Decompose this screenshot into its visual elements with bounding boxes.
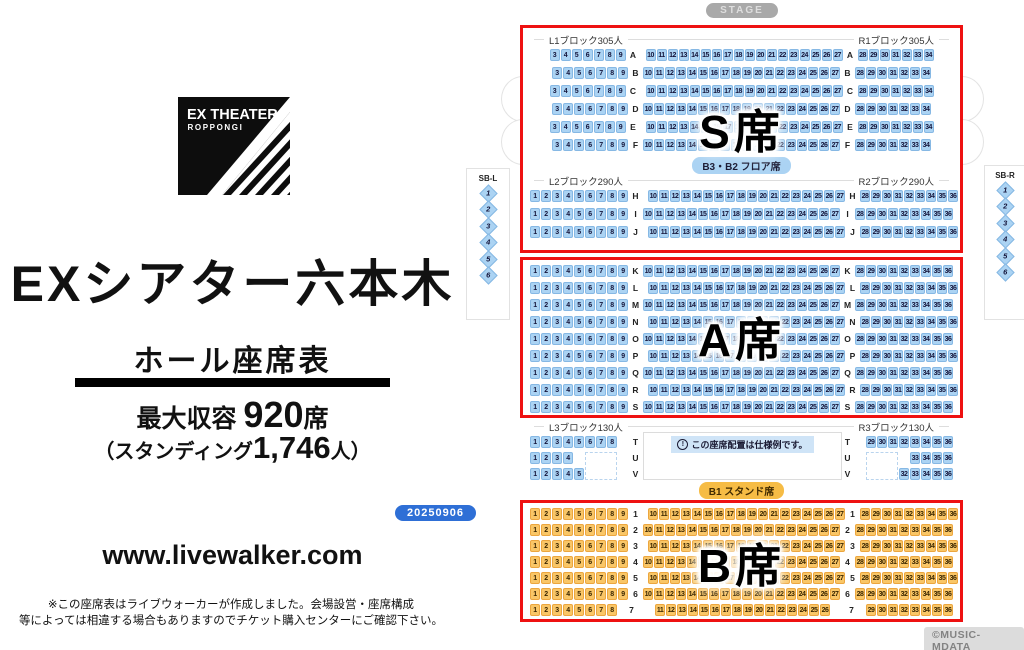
seat: 16 — [714, 226, 724, 238]
seat: 10 — [648, 508, 658, 520]
seat: 29 — [866, 401, 876, 413]
row-label: 1 — [628, 509, 643, 519]
seat: 24 — [802, 350, 812, 362]
seat: 24 — [802, 226, 812, 238]
seat: 15 — [703, 226, 713, 238]
seat: 28 — [855, 588, 865, 600]
seat-block: 3456789 — [530, 103, 628, 115]
seat: 26 — [824, 226, 834, 238]
seat: 32 — [904, 540, 914, 552]
seat: 5 — [574, 265, 584, 277]
seat: 32 — [899, 556, 909, 568]
seat-block: 101112131415161718192021222324252627 — [643, 282, 845, 294]
seat: 27 — [830, 208, 840, 220]
seat: 31 — [893, 226, 903, 238]
seat: 9 — [618, 316, 628, 328]
seat: 9 — [618, 572, 628, 584]
seat: 34 — [921, 588, 931, 600]
seat: 4 — [561, 49, 571, 61]
seat-block: 3456789 — [530, 49, 626, 61]
seat: 25 — [811, 49, 821, 61]
seat: 12 — [665, 67, 675, 79]
seat: 28 — [855, 556, 865, 568]
seat: 4 — [563, 299, 573, 311]
seat: 6 — [583, 121, 593, 133]
seat: 26 — [819, 139, 829, 151]
seat: 8 — [607, 299, 617, 311]
seat: 7 — [596, 572, 606, 584]
seat: 8 — [607, 226, 617, 238]
seat: 5 — [574, 572, 584, 584]
seat: 24 — [797, 265, 807, 277]
seat: 32 — [899, 524, 909, 536]
seat: 11 — [654, 103, 664, 115]
row-label: A — [626, 50, 641, 60]
seat-row: 1234567871112131415161718192021222324252… — [530, 604, 953, 616]
seat: 17 — [720, 67, 730, 79]
seat: 35 — [937, 540, 947, 552]
capacity-unit: 席 — [304, 405, 329, 433]
seat: 23 — [786, 265, 796, 277]
seat: 27 — [830, 401, 840, 413]
block-header-right: R1ブロック305人 — [854, 33, 940, 47]
seat: 4 — [563, 540, 573, 552]
seat-block: 12345678 — [530, 436, 628, 448]
seat: 28 — [855, 103, 865, 115]
seat: 4 — [563, 139, 573, 151]
seat: 34 — [921, 103, 931, 115]
seat: 23 — [786, 67, 796, 79]
seat: 6 — [583, 49, 593, 61]
seat: 2 — [541, 540, 551, 552]
seat-row: 123456789J101112131415161718192021222324… — [530, 226, 953, 238]
seat: 30 — [877, 103, 887, 115]
seat: 29 — [866, 604, 876, 616]
seat: 33 — [910, 103, 920, 115]
row-label: 7 — [624, 605, 639, 615]
seat: 25 — [813, 282, 823, 294]
seat-block: 123456789 — [530, 556, 628, 568]
seat: 13 — [676, 139, 686, 151]
seat: 14 — [688, 604, 698, 616]
seat: 2 — [541, 572, 551, 584]
side-balcony-left: SB-L 123456 — [466, 168, 510, 320]
seat: 32 — [899, 139, 909, 151]
seat: 15 — [703, 282, 713, 294]
seat: 3 — [552, 333, 562, 345]
seat: 21 — [769, 226, 779, 238]
seat: 4 — [563, 508, 573, 520]
seat: 5 — [574, 103, 584, 115]
seat: 13 — [679, 85, 689, 97]
seat: 14 — [687, 299, 697, 311]
seat: 10 — [643, 588, 653, 600]
seat: 1 — [530, 384, 540, 396]
seat: 13 — [681, 350, 691, 362]
seat: 33 — [913, 49, 923, 61]
seat: 8 — [607, 67, 617, 79]
row-label: H — [628, 191, 643, 201]
seat: 33 — [915, 572, 925, 584]
seat: 29 — [866, 524, 876, 536]
row-label: E — [843, 122, 858, 132]
seat: 35 — [932, 299, 942, 311]
section-a-box: 123456789K101112131415161718192021222324… — [520, 257, 963, 418]
seat: 23 — [786, 333, 796, 345]
row-label: 2 — [840, 525, 855, 535]
seat: 12 — [668, 85, 678, 97]
seat-block: 28293031323334 — [855, 67, 953, 79]
seat: 33 — [915, 384, 925, 396]
row-label: P — [628, 351, 643, 361]
seat: 30 — [877, 524, 887, 536]
seat: 34 — [924, 49, 934, 61]
seat: 10 — [646, 85, 656, 97]
seat: 7 — [596, 226, 606, 238]
seat: 17 — [725, 384, 735, 396]
row-label: Q — [840, 368, 855, 378]
seat: 7 — [596, 588, 606, 600]
seat: 11 — [659, 282, 669, 294]
seat: 36 — [948, 540, 958, 552]
block-header-right: R2ブロック290人 — [854, 174, 940, 188]
seat: 36 — [948, 190, 958, 202]
seat: 11 — [659, 508, 669, 520]
seat: 13 — [679, 121, 689, 133]
seat: 8 — [607, 316, 617, 328]
seat: 30 — [877, 139, 887, 151]
seat: 8 — [607, 333, 617, 345]
seat: 7 — [596, 316, 606, 328]
seat-block: 3456789 — [530, 139, 628, 151]
seat: 28 — [855, 367, 865, 379]
seat: 21 — [769, 190, 779, 202]
seat: 24 — [802, 572, 812, 584]
seat: 35 — [937, 572, 947, 584]
seat: 29 — [869, 121, 879, 133]
seat: 10 — [648, 384, 658, 396]
seat: 35 — [937, 282, 947, 294]
seat: 8 — [607, 556, 617, 568]
seat: 15 — [699, 604, 709, 616]
seat: 13 — [676, 103, 686, 115]
seat: 8 — [607, 139, 617, 151]
seat: 14 — [692, 384, 702, 396]
seat: 11 — [657, 85, 667, 97]
seat: 7 — [596, 139, 606, 151]
website-text: www.livewalker.com — [0, 540, 465, 571]
seat: 23 — [786, 401, 796, 413]
row-label: Q — [628, 368, 643, 378]
seat: 31 — [891, 85, 901, 97]
seat: 3 — [552, 350, 562, 362]
seat: 12 — [665, 588, 675, 600]
seat: 29 — [866, 436, 876, 448]
section-s-box: L1ブロック305人R1ブロック305人3456789A101112131415… — [520, 25, 963, 253]
seat: 34 — [926, 508, 936, 520]
seat: 20 — [758, 282, 768, 294]
seat: 27 — [835, 508, 845, 520]
seat: 33 — [910, 367, 920, 379]
seat: 9 — [618, 508, 628, 520]
seat: 32 — [904, 316, 914, 328]
seat-block: 123456789 — [530, 316, 628, 328]
seat: 32 — [899, 604, 909, 616]
row-label: B — [840, 68, 855, 78]
seat: 1 — [530, 282, 540, 294]
row-label: M — [840, 300, 855, 310]
seat: 8 — [605, 85, 615, 97]
empty-seat-area — [585, 452, 617, 480]
seat: 10 — [648, 282, 658, 294]
seat: 26 — [824, 190, 834, 202]
seat: 2 — [541, 208, 551, 220]
seat: 2 — [541, 316, 551, 328]
seat: 22 — [780, 190, 790, 202]
seat: 34 — [926, 572, 936, 584]
seat: 1 — [530, 604, 540, 616]
seat: 24 — [802, 190, 812, 202]
seat: 4 — [563, 226, 573, 238]
seat: 35 — [932, 604, 942, 616]
seat: 5 — [574, 588, 584, 600]
seat: 20 — [753, 265, 763, 277]
seat: 3 — [552, 282, 562, 294]
seat: 4 — [563, 333, 573, 345]
seat: 4 — [563, 265, 573, 277]
seat: 20 — [753, 208, 763, 220]
seat: 28 — [858, 85, 868, 97]
seat: 8 — [607, 588, 617, 600]
seat: 9 — [616, 121, 626, 133]
seat-block: 28293031323334 — [858, 121, 954, 133]
seat: 11 — [659, 190, 669, 202]
seat: 2 — [541, 401, 551, 413]
seat: 12 — [665, 265, 675, 277]
seat: 5 — [574, 333, 584, 345]
seat: 4 — [561, 121, 571, 133]
seat: 32 — [902, 121, 912, 133]
seat-block: 282930313233343536 — [855, 588, 953, 600]
seat: 25 — [813, 384, 823, 396]
seat: 20 — [754, 604, 764, 616]
seat: 23 — [791, 350, 801, 362]
seat: 10 — [648, 316, 658, 328]
seat: 33 — [910, 265, 920, 277]
seat: 27 — [835, 316, 845, 328]
seat: 11 — [654, 367, 664, 379]
row-label: J — [845, 227, 860, 237]
seat: 2 — [541, 367, 551, 379]
seat: 2 — [541, 452, 551, 464]
seat: 27 — [830, 556, 840, 568]
seat-block: 101112131415161718192021222324252627 — [643, 190, 845, 202]
seat: 11 — [659, 540, 669, 552]
seat: 30 — [877, 67, 887, 79]
seat: 1 — [530, 508, 540, 520]
seat: 23 — [789, 49, 799, 61]
seat: 12 — [668, 121, 678, 133]
seat: 5 — [574, 468, 584, 480]
seat: 33 — [910, 333, 920, 345]
seat: 19 — [742, 67, 752, 79]
row-label: O — [628, 334, 643, 344]
seat: 31 — [888, 436, 898, 448]
row-label: I — [628, 209, 643, 219]
seat: 11 — [659, 350, 669, 362]
seat: 36 — [943, 588, 953, 600]
seat: 1 — [530, 468, 540, 480]
seat: 33 — [910, 524, 920, 536]
seat: 32 — [904, 282, 914, 294]
seat: 30 — [882, 350, 892, 362]
seat-row: 123456789R101112131415161718192021222324… — [530, 384, 953, 396]
seat: 9 — [618, 208, 628, 220]
seat: 36 — [943, 524, 953, 536]
seat: 14 — [692, 226, 702, 238]
seat: 4 — [563, 350, 573, 362]
seat: 11 — [654, 208, 664, 220]
seat: 16 — [709, 208, 719, 220]
seat: 9 — [618, 588, 628, 600]
seat: 7 — [596, 299, 606, 311]
standing-label: （スタンディング — [94, 441, 253, 463]
seat: 9 — [618, 103, 628, 115]
row-label: T — [628, 437, 643, 447]
seat: 23 — [791, 316, 801, 328]
seat: 4 — [563, 556, 573, 568]
seat: 3 — [552, 452, 562, 464]
seat: 12 — [665, 208, 675, 220]
seat: 25 — [808, 265, 818, 277]
seat: 25 — [813, 190, 823, 202]
seat: 29 — [871, 572, 881, 584]
seat: 28 — [855, 139, 865, 151]
seat: 26 — [819, 401, 829, 413]
seat: 24 — [802, 282, 812, 294]
seat: 24 — [802, 316, 812, 328]
seat: 6 — [585, 367, 595, 379]
seat: 35 — [932, 401, 942, 413]
seat: 12 — [665, 401, 675, 413]
seat: 25 — [808, 556, 818, 568]
seat: 11 — [654, 139, 664, 151]
seat: 21 — [769, 282, 779, 294]
seat: 7 — [596, 350, 606, 362]
seat: 8 — [607, 540, 617, 552]
seat: 31 — [888, 67, 898, 79]
seat: 26 — [824, 350, 834, 362]
seat: 14 — [687, 333, 697, 345]
seat-block: 28293031323334 — [858, 85, 954, 97]
seat: 3 — [550, 85, 560, 97]
seat: 1 — [530, 208, 540, 220]
row-label: 5 — [628, 573, 643, 583]
seat: 8 — [605, 121, 615, 133]
seat-block: 11121314151617181920212223242526 — [639, 604, 844, 616]
seat: 28 — [860, 282, 870, 294]
seat: 23 — [791, 384, 801, 396]
seat: 19 — [747, 384, 757, 396]
row-label: 3 — [845, 541, 860, 551]
seat: 31 — [891, 121, 901, 133]
seat: 20 — [756, 49, 766, 61]
seat: 13 — [681, 508, 691, 520]
credit-badge: ©MUSIC-MDATA — [924, 627, 1024, 650]
seat: 6 — [585, 316, 595, 328]
seat: 25 — [808, 299, 818, 311]
seat: 27 — [835, 350, 845, 362]
seat: 10 — [643, 299, 653, 311]
seat: 13 — [681, 226, 691, 238]
seat: 36 — [943, 333, 953, 345]
block-header-left: L1ブロック305人 — [544, 33, 628, 47]
seat: 25 — [813, 350, 823, 362]
seat: 33 — [915, 350, 925, 362]
seat: 5 — [572, 85, 582, 97]
seat: 35 — [937, 384, 947, 396]
seat: 12 — [665, 299, 675, 311]
seat: 10 — [648, 540, 658, 552]
seat: 5 — [574, 190, 584, 202]
row-label: C — [843, 86, 858, 96]
seat: 34 — [921, 436, 931, 448]
seat: 18 — [731, 401, 741, 413]
seat: 28 — [855, 524, 865, 536]
seat: 27 — [830, 333, 840, 345]
seat: 19 — [747, 282, 757, 294]
seat: 4 — [563, 384, 573, 396]
seat: 31 — [893, 540, 903, 552]
seat: 5 — [574, 226, 584, 238]
seat: 4 — [563, 468, 573, 480]
seat: 19 — [742, 401, 752, 413]
seat: 17 — [721, 604, 731, 616]
seat: 30 — [877, 588, 887, 600]
seat: 12 — [670, 282, 680, 294]
seat: 23 — [786, 367, 796, 379]
seat: 24 — [797, 67, 807, 79]
seat: 3 — [552, 604, 562, 616]
row-label: 5 — [845, 573, 860, 583]
seat: 34 — [924, 85, 934, 97]
seat: 8 — [607, 265, 617, 277]
seat: 32 — [899, 333, 909, 345]
seat: 29 — [866, 299, 876, 311]
seat-block: 101112131415161718192021222324252627 — [643, 208, 840, 220]
seat: 2 — [541, 190, 551, 202]
seat: 1 — [530, 524, 540, 536]
row-label: 4 — [840, 557, 855, 567]
seat: 10 — [648, 190, 658, 202]
seat: 2 — [541, 226, 551, 238]
seat: 28 — [860, 316, 870, 328]
seat: 19 — [747, 226, 757, 238]
seat: 36 — [943, 452, 953, 464]
seat: 27 — [830, 367, 840, 379]
seat: 36 — [943, 299, 953, 311]
seat: 18 — [736, 226, 746, 238]
standing-value: 1,746 — [253, 430, 331, 465]
seat: 14 — [690, 121, 700, 133]
seat: 23 — [786, 588, 796, 600]
seat: 7 — [596, 401, 606, 413]
ex-theater-logo: EX THEATER ROPPONGI — [178, 97, 290, 195]
seat: 25 — [808, 524, 818, 536]
seat: 6 — [585, 190, 595, 202]
seat: 16 — [714, 508, 724, 520]
seat: 33 — [915, 282, 925, 294]
